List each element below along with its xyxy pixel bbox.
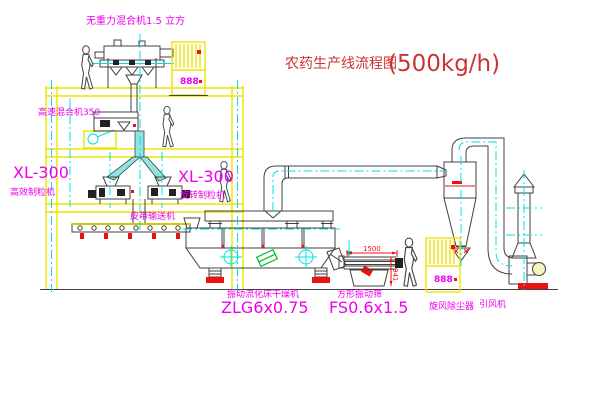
gravity-mixer [92, 40, 174, 112]
worker-2nd-floor [163, 106, 174, 147]
indicator-light [197, 50, 201, 54]
induced-draft-fan [488, 248, 548, 289]
dryer-spring-feet [206, 268, 330, 283]
dimension-width: 1500 [347, 245, 397, 257]
high-speed-mixer-label: 高速混合机350 [38, 106, 100, 118]
cyclone-separator [444, 138, 504, 261]
worker-roof [82, 46, 94, 89]
diagram-capacity: (500kg/h) [388, 51, 500, 77]
belt-conveyor-label: 皮带输送机 [130, 210, 175, 222]
granulator-right-model: XL-300 [178, 167, 234, 186]
dryer-model-label: ZLG6x0.75 [221, 298, 309, 317]
granulator-left-model: XL-300 [13, 163, 69, 182]
cabinet-right-display: 888 [434, 275, 453, 285]
fan-label: 引风机 [479, 298, 506, 310]
cyclone-label: 旋风除尘器 [429, 300, 474, 312]
indicator-light [451, 245, 455, 249]
mixer-drive-box [84, 131, 116, 148]
screen-height-dim: 941 [391, 268, 399, 281]
cabinet-top-display: 888 [180, 77, 199, 87]
gravity-mixer-label: 无重力混合机1.5 立方 [86, 14, 185, 27]
screen-model-label: FS0.6x1.5 [329, 298, 408, 317]
fluid-bed-dryer [184, 211, 352, 283]
worker-ground [404, 238, 417, 286]
high-speed-mixer [84, 112, 144, 157]
pesticide-line-flow-diagram: 888 [0, 0, 600, 403]
brand-logo [257, 250, 278, 267]
dryer-outlet-chute [327, 248, 346, 270]
granulator-left-machine [88, 177, 134, 204]
belt-conveyor [72, 224, 190, 239]
control-cabinet-right: 888 [426, 238, 460, 292]
diagram-canvas: 888 [0, 0, 600, 403]
granulator-right-name: 旋转制粒机 [180, 189, 225, 201]
exhaust-duct [264, 166, 446, 211]
diagram-title: 农药生产线流程图 [285, 56, 397, 72]
screen-width-dim: 1500 [363, 245, 381, 253]
granulator-left-name: 高效制粒机 [10, 186, 55, 198]
